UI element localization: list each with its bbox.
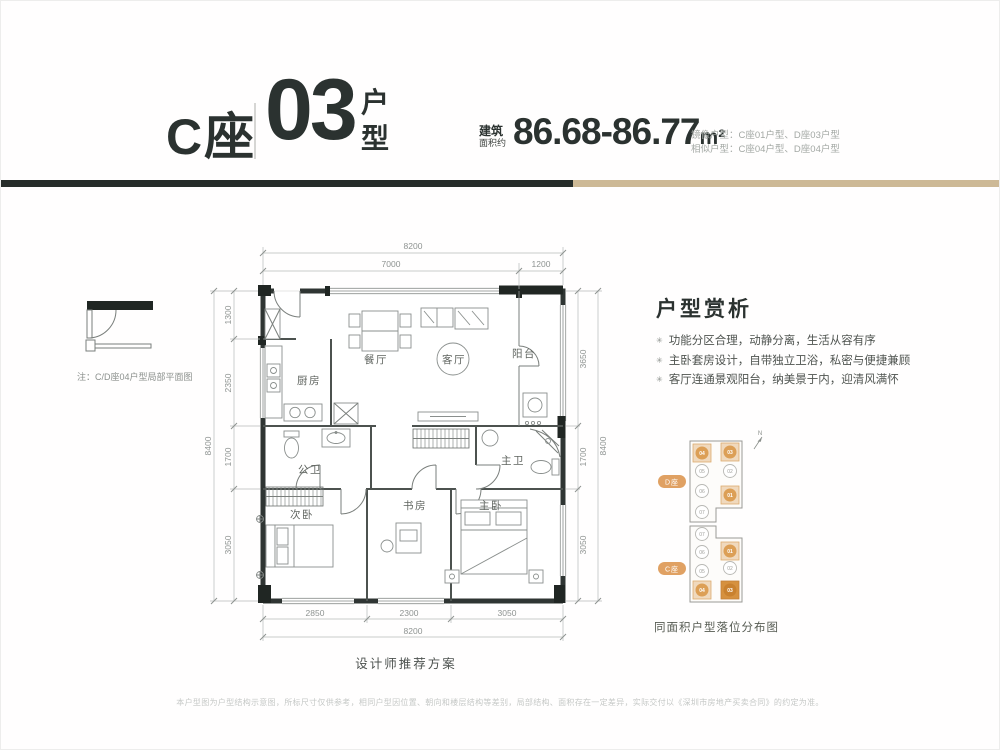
- mirror-unit-note: 镜像户型：C座01户型、D座03户型: [691, 129, 840, 143]
- site-unit-c02: 02: [724, 562, 737, 575]
- svg-text:01: 01: [727, 549, 733, 555]
- title-divider: [254, 103, 256, 159]
- asterisk-bullet-icon: ✳: [656, 375, 663, 384]
- svg-text:02: 02: [727, 469, 733, 475]
- header-divider-dark: [1, 180, 573, 187]
- analysis-bullet-2-text: 主卧套房设计，自带独立卫浴，私密与便捷兼顾: [669, 355, 911, 367]
- second-bed: [266, 525, 333, 567]
- dim-top-right: 1200: [532, 259, 551, 269]
- site-unit-c07: 07: [696, 528, 709, 541]
- site-unit-c06: 06: [696, 546, 709, 559]
- dim-bottom-total: 8200: [404, 626, 423, 636]
- partial-plan-wall: [87, 301, 153, 310]
- similar-unit-note: 相似户型：C座04户型、D座04户型: [691, 143, 840, 157]
- dim-bottom: 2850 2300 3050 8200: [260, 608, 566, 640]
- room-label-study: 书房: [403, 499, 427, 512]
- svg-text:D座: D座: [665, 478, 679, 487]
- site-unit-d02: 02: [724, 465, 737, 478]
- header-divider-tan: [573, 180, 1000, 187]
- site-unit-c04: 04: [693, 581, 711, 599]
- area-prefix-line1: 建筑: [479, 124, 506, 138]
- room-label-dining: 餐厅: [364, 353, 388, 366]
- dim-top-left: 7000: [382, 259, 401, 269]
- svg-text:05: 05: [699, 469, 705, 475]
- analysis-bullet-1-text: 功能分区合理，动静分离，生活从容有序: [669, 335, 876, 347]
- floor-plan-drawing: 厨房 餐厅 客厅 阳台 公卫 主卫 次卧 书房 主卧 8200 7000 120…: [196, 233, 626, 647]
- floorplan-brochure-page: C座 03 户 型 建筑 面积约 86.68-86.77m² 镜像户型：C座01…: [0, 0, 1000, 750]
- site-unit-c03-current: 03: [721, 581, 739, 599]
- room-label-master-bedroom: 主卧: [479, 499, 503, 512]
- room-label-public-bath: 公卫: [298, 464, 322, 476]
- site-unit-d05: 05: [696, 465, 709, 478]
- partial-plan-jamb: [86, 340, 95, 351]
- dim-right-1: 3650: [578, 349, 588, 368]
- svg-text:06: 06: [699, 489, 705, 495]
- analysis-bullet-1: ✳功能分区合理，动静分离，生活从容有序: [656, 332, 876, 348]
- room-label-master-bath: 主卫: [501, 455, 525, 467]
- site-unit-d04: 04: [693, 444, 711, 462]
- area-prefix: 建筑 面积约: [479, 124, 506, 149]
- dim-left-total: 8400: [203, 436, 213, 455]
- disclaimer-text: 本户型图为户型结构示意图，所标尺寸仅供参考，相同户型因位置、朝向和楼层结构等差别…: [1, 697, 999, 708]
- svg-text:01: 01: [727, 493, 733, 499]
- site-unit-d03: 03: [721, 443, 739, 461]
- site-unit-c01: 01: [721, 542, 739, 560]
- svg-text:03: 03: [727, 450, 733, 456]
- svg-text:02: 02: [727, 566, 733, 572]
- unit-number: 03: [265, 67, 355, 153]
- dim-right: 3650 1700 3050 8400: [575, 288, 608, 604]
- dim-right-2: 1700: [578, 447, 588, 466]
- entry-cabinet: [265, 309, 280, 339]
- svg-text:C座: C座: [665, 565, 679, 574]
- north-arrow-icon: N: [754, 431, 762, 449]
- partial-plan-door-arc: [90, 310, 116, 338]
- dim-top: 8200 7000 1200: [260, 241, 566, 274]
- svg-text:07: 07: [699, 510, 705, 516]
- room-label-second-bedroom: 次卧: [290, 508, 314, 521]
- unit-type-char-top: 户: [361, 85, 389, 121]
- dim-left: 8400 1300 2350 1700 3050: [203, 288, 237, 604]
- dim-right-total: 8400: [598, 436, 608, 455]
- svg-text:03: 03: [727, 588, 733, 594]
- asterisk-bullet-icon: ✳: [656, 336, 663, 345]
- room-label-balcony: 阳台: [512, 347, 536, 360]
- area-number: 86.68-86.77: [513, 111, 700, 152]
- unit-type-char-bottom: 型: [361, 121, 389, 157]
- master-wardrobe: [413, 429, 469, 448]
- analysis-bullet-3: ✳客厅连通景观阳台，纳美景于内，迎清风满怀: [656, 371, 899, 387]
- north-label: N: [758, 431, 762, 437]
- svg-text:05: 05: [699, 569, 705, 575]
- site-unit-d01: 01: [721, 486, 739, 504]
- dim-left-4: 3050: [223, 535, 233, 554]
- site-unit-d06: 06: [696, 485, 709, 498]
- area-prefix-line2: 面积约: [479, 138, 506, 149]
- dim-bottom-3: 3050: [498, 608, 517, 618]
- svg-text:07: 07: [699, 532, 705, 538]
- dim-bottom-2: 2300: [400, 608, 419, 618]
- analysis-bullet-2: ✳主卧套房设计，自带独立卫浴，私密与便捷兼顾: [656, 352, 910, 368]
- partial-plan-wall-thin: [95, 344, 151, 348]
- related-unit-notes: 镜像户型：C座01户型、D座03户型 相似户型：C座04户型、D座04户型: [691, 129, 840, 157]
- site-map-caption: 同面积户型落位分布图: [654, 619, 779, 635]
- site-block-c-label: C座: [658, 562, 686, 575]
- tv-cabinet: [418, 412, 478, 421]
- dim-left-2: 2350: [223, 373, 233, 392]
- svg-text:04: 04: [699, 588, 705, 594]
- svg-text:04: 04: [699, 451, 705, 457]
- second-wardrobe: [266, 487, 323, 506]
- room-label-kitchen: 厨房: [297, 374, 321, 387]
- partial-plan-door-leaf: [87, 310, 92, 338]
- site-block-d-label: D座: [658, 475, 686, 488]
- dim-left-3: 1700: [223, 447, 233, 466]
- plan-caption: 设计师推荐方案: [321, 653, 491, 672]
- asterisk-bullet-icon: ✳: [656, 356, 663, 365]
- analysis-title: 户型赏析: [656, 293, 752, 323]
- shaft-box: [334, 403, 358, 424]
- partial-plan-note: 注：C/D座04户型局部平面图: [77, 370, 193, 383]
- room-label-living: 客厅: [442, 353, 466, 366]
- dim-top-total: 8200: [404, 241, 423, 251]
- site-unit-d07: 07: [696, 506, 709, 519]
- dim-left-1: 1300: [223, 305, 233, 324]
- site-map-diagram: N 04 03 05 02 06: [656, 426, 771, 611]
- block-label: C座: [166, 97, 256, 169]
- svg-text:06: 06: [699, 550, 705, 556]
- dim-bottom-1: 2850: [306, 608, 325, 618]
- dim-right-3: 3050: [578, 535, 588, 554]
- site-unit-c05: 05: [696, 565, 709, 578]
- partial-plan-drawing: [83, 295, 193, 359]
- unit-type-label: 户 型: [361, 85, 389, 158]
- analysis-bullet-3-text: 客厅连通景观阳台，纳美景于内，迎清风满怀: [669, 374, 899, 386]
